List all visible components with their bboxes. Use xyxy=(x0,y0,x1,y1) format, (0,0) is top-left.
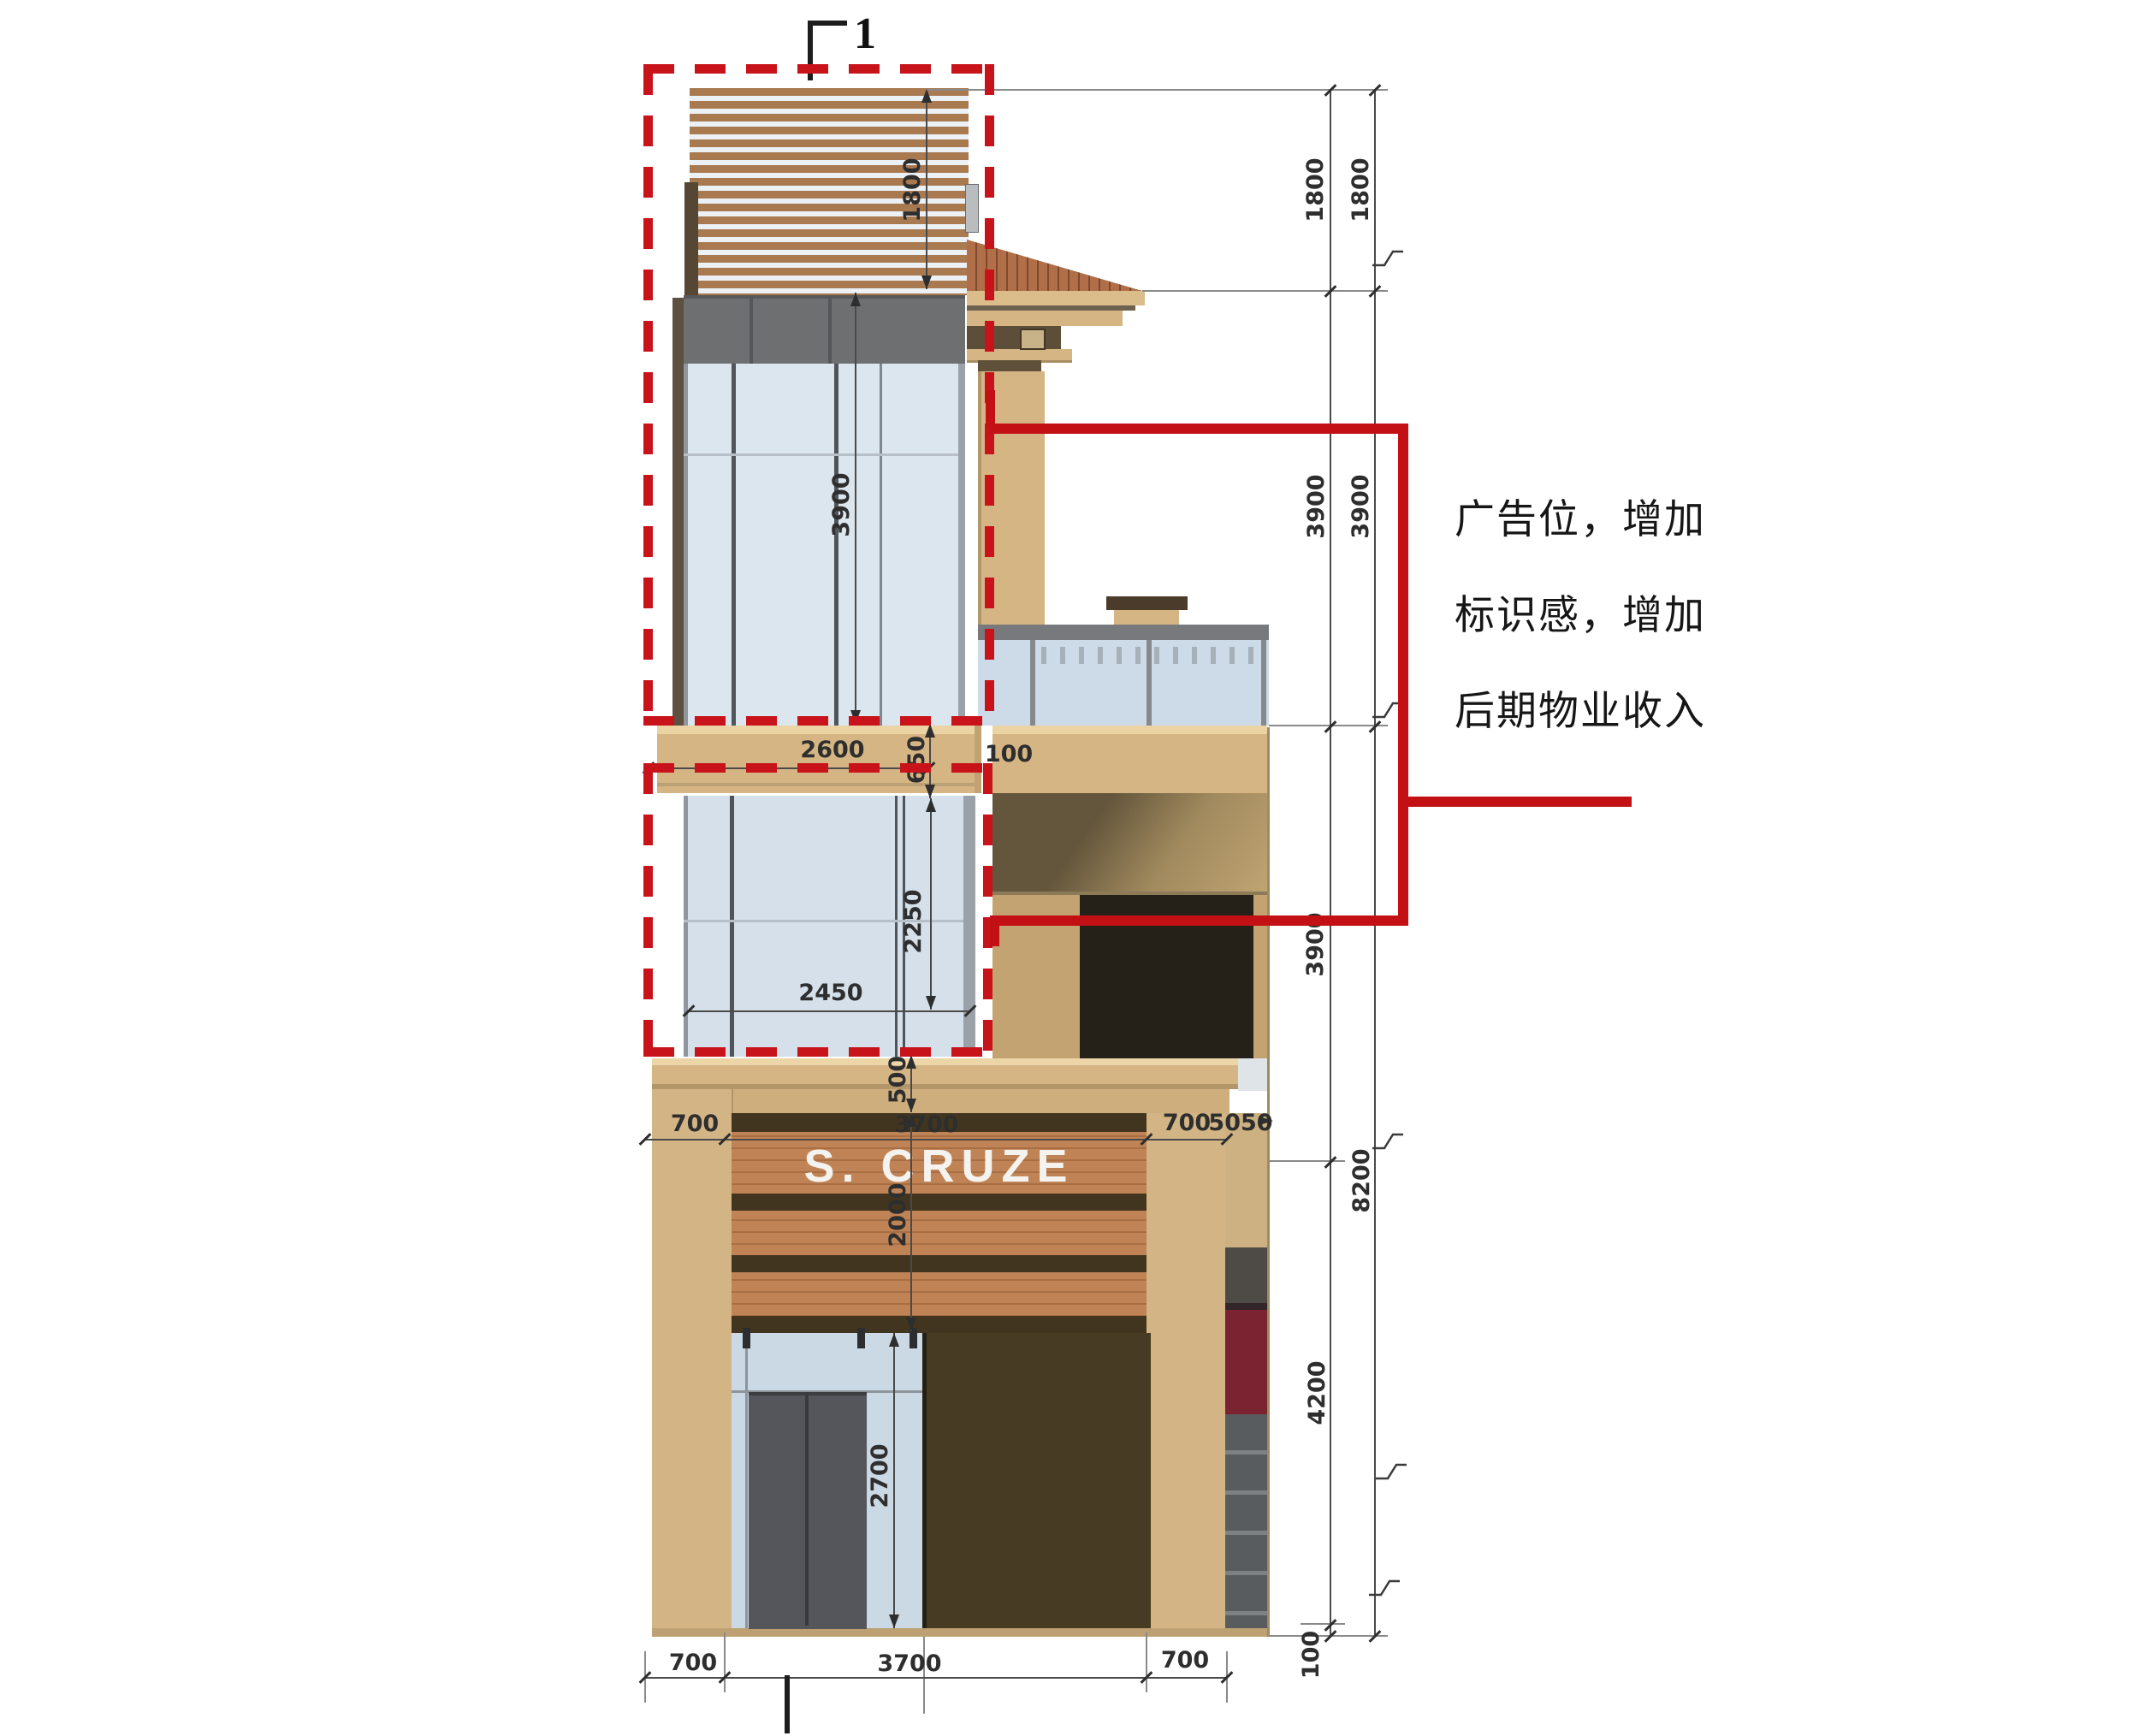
dim-label-mid-bay: 3700 xyxy=(875,1111,978,1138)
annotation-line-2: 标识感，增加 xyxy=(1455,582,1706,641)
highlight-box-upper-left xyxy=(643,64,653,726)
dim-line-tower-lower-w xyxy=(689,1010,970,1012)
roof-soffit xyxy=(967,326,1061,349)
curtain-wall-right-frame xyxy=(958,364,965,726)
section-cut-line-bottom xyxy=(785,1675,790,1733)
highlight-box-lower-bottom xyxy=(643,1047,992,1057)
dim-label-beam-w: 2600 xyxy=(781,737,884,763)
awning-maroon xyxy=(1225,1303,1269,1421)
lintel-line xyxy=(992,892,1267,895)
callout-branch-line xyxy=(1403,797,1632,807)
dark-storefront-panel xyxy=(922,1333,1151,1630)
dim-label-bot-bay: 3700 xyxy=(858,1650,961,1677)
rail-post xyxy=(1030,640,1035,726)
frame-stub xyxy=(743,1328,750,1348)
balcony-rail-top xyxy=(978,625,1269,640)
dim-label-mid-total: 5050 xyxy=(1189,1110,1292,1136)
mullion xyxy=(895,796,898,1057)
frame-stub xyxy=(857,1328,865,1348)
dim-arrow xyxy=(906,1318,916,1331)
dim-arrow xyxy=(850,293,861,306)
grille-panel xyxy=(1225,1414,1269,1628)
callout-top-line xyxy=(990,424,1408,434)
right-pier xyxy=(1147,1113,1225,1632)
elevation-drawing: S. CRUZE 1 广告位，增加 标识感，增加 后期物业收入 xyxy=(0,0,2139,1736)
spandrel-joint xyxy=(750,295,753,364)
tower-left-edge xyxy=(673,298,684,726)
section-cut-line-horizontal xyxy=(808,21,847,26)
highlight-box-upper-top xyxy=(643,64,994,74)
sign-band-dark-stripe xyxy=(732,1255,1147,1272)
right-strip-shadow xyxy=(1225,1247,1269,1303)
dim-line-bottom xyxy=(645,1677,1227,1679)
rail-post xyxy=(1261,640,1266,726)
sign-text: S. CRUZE xyxy=(732,1140,1147,1193)
callout-stub-bottom xyxy=(990,926,999,946)
spandrel-band xyxy=(684,295,965,364)
louver-left-post xyxy=(684,182,698,298)
dim-line-door-h xyxy=(893,1333,895,1628)
dim-arrow xyxy=(926,798,936,812)
dim-label-chain-inner-4200: 4200 xyxy=(1304,1333,1330,1453)
building-right-edge xyxy=(1267,727,1270,1637)
baluster-hint xyxy=(1041,647,1264,664)
dim-arrow xyxy=(921,89,932,103)
dim-label-door-h: 2700 xyxy=(867,1416,892,1536)
slab-end-railing xyxy=(1238,1058,1269,1091)
mullion xyxy=(732,364,736,726)
annotation-line-1: 广告位，增加 xyxy=(1455,486,1706,545)
door-split xyxy=(805,1392,809,1626)
mullion xyxy=(684,364,688,726)
chimney-cap xyxy=(1106,596,1188,610)
sign-slab-shadow xyxy=(652,1084,1238,1089)
sign-slab-highlight xyxy=(652,1058,1238,1065)
mullion xyxy=(684,796,688,1057)
dim-label-mid-pier-l: 700 xyxy=(643,1111,746,1137)
highlight-box-lower-right xyxy=(983,763,992,1057)
storefront-mullion xyxy=(745,1333,748,1628)
dim-line-tower-upper xyxy=(855,293,856,724)
extension-line xyxy=(1142,290,1388,292)
dim-line-louver-h xyxy=(926,92,927,289)
dim-arrow xyxy=(889,1615,899,1628)
left-pier xyxy=(652,1089,733,1632)
base-band xyxy=(652,1628,1269,1637)
dim-label-louver-h: 1800 xyxy=(899,130,925,250)
callout-vertical-line xyxy=(1398,424,1408,926)
dim-arrow xyxy=(926,996,936,1010)
dim-label-chain-inner-1800: 1800 xyxy=(1302,130,1328,250)
highlight-box-upper-bottom xyxy=(643,716,994,726)
soffit-bracket xyxy=(1020,329,1046,350)
dim-line-tower-lower-h xyxy=(930,798,932,1010)
dim-label-chain-inner-3900b: 3900 xyxy=(1302,885,1328,1004)
louver-right-bracket xyxy=(965,184,979,233)
highlight-box-lower-top xyxy=(643,763,992,773)
dim-label-chain-inner-100: 100 xyxy=(1298,1595,1324,1715)
dim-label-chain-inner-3900: 3900 xyxy=(1303,447,1329,566)
level-mark-icon xyxy=(1374,1460,1408,1482)
dim-label-tower-lower-h: 2250 xyxy=(900,862,926,981)
dim-line-mid xyxy=(645,1139,1227,1141)
dim-label-chain-outer-1800: 1800 xyxy=(1348,130,1373,250)
curtain-wall-upper xyxy=(684,364,965,726)
level-mark-icon xyxy=(1371,1129,1405,1152)
extension-line xyxy=(927,89,1388,91)
callout-bottom-line xyxy=(990,915,1408,926)
level-mark-icon xyxy=(1367,1576,1401,1598)
dim-label-tower-lower-w: 2450 xyxy=(779,980,882,1006)
section-marker-label: 1 xyxy=(854,9,876,59)
dim-arrow xyxy=(906,1113,916,1127)
glass-joint xyxy=(684,453,965,456)
slab-highlight xyxy=(992,726,1267,734)
dim-arrow xyxy=(889,1333,899,1347)
mullion xyxy=(880,364,882,726)
spandrel-joint xyxy=(828,295,832,364)
mullion xyxy=(730,796,734,1057)
spandrel-top-line xyxy=(684,295,965,299)
dim-label-bot-pier-l: 700 xyxy=(642,1650,744,1676)
dim-label-sign-h: 2000 xyxy=(885,1155,910,1275)
dim-chain-outer-line xyxy=(1374,90,1376,1637)
dim-label-bot-pier-r: 700 xyxy=(1134,1647,1236,1674)
level-mark-icon xyxy=(1371,246,1405,269)
dim-arrow xyxy=(921,276,932,289)
sign-band-dark-stripe xyxy=(732,1316,1147,1333)
highlight-box-lower-left xyxy=(643,763,653,1057)
recessed-soffit xyxy=(992,793,1267,894)
sign-band-dark-stripe xyxy=(732,1194,1147,1211)
dim-arrow-right xyxy=(1259,1117,1273,1125)
dim-label-chain-outer-3900: 3900 xyxy=(1348,447,1373,566)
annotation-line-3: 后期物业收入 xyxy=(1455,678,1706,737)
dim-label-tower-upper: 3900 xyxy=(828,445,854,565)
rail-post xyxy=(1147,640,1152,726)
